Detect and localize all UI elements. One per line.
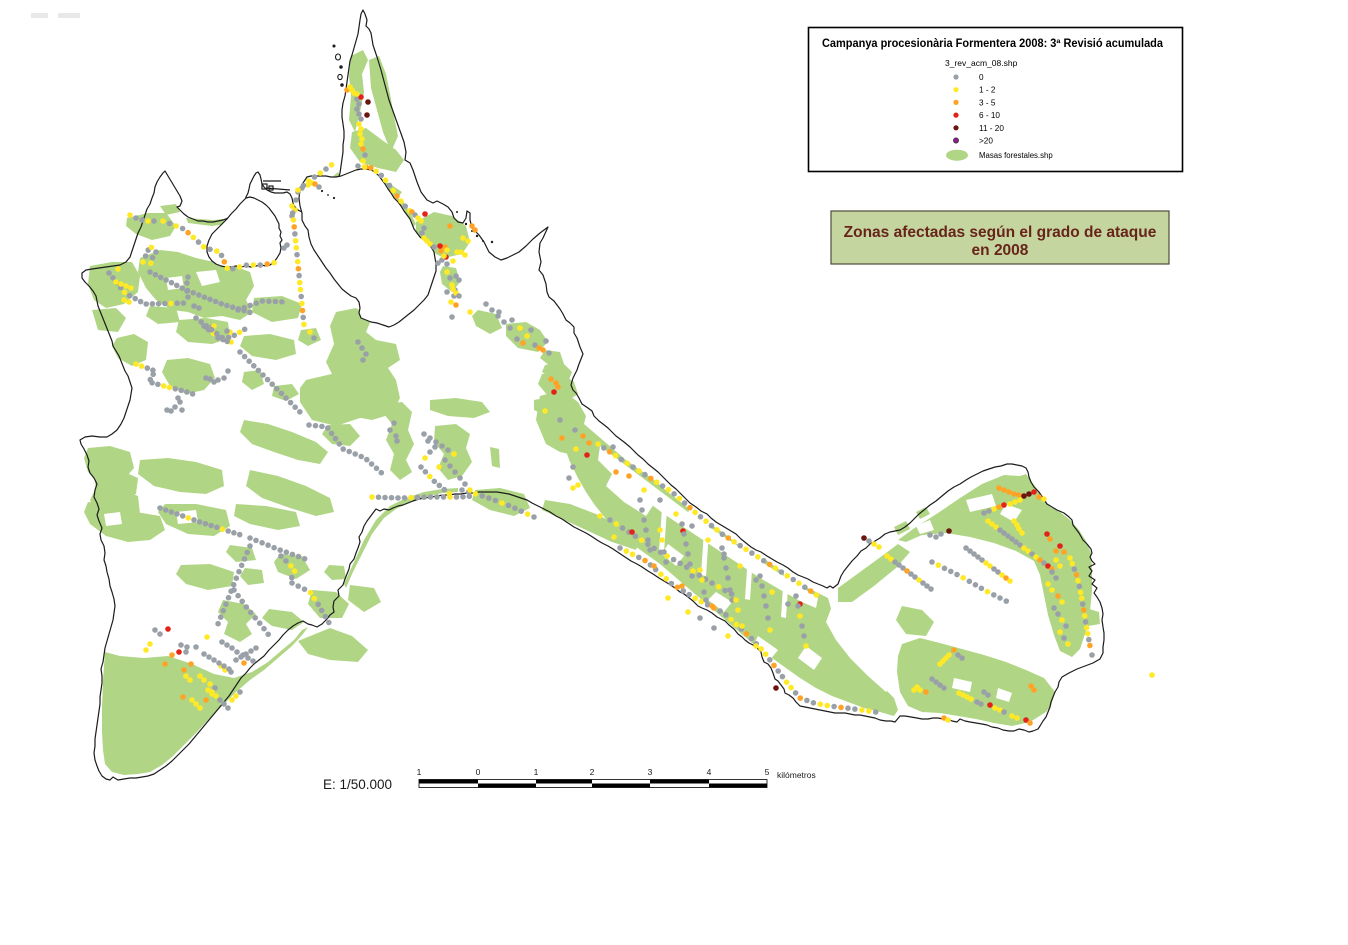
svg-text:en 2008: en 2008 (972, 242, 1029, 259)
svg-text:3_rev_acm_08.shp: 3_rev_acm_08.shp (945, 58, 1018, 68)
svg-text:Zonas afectadas según el grado: Zonas afectadas según el grado de ataque (844, 224, 1157, 241)
svg-text:>20: >20 (979, 137, 993, 146)
svg-text:11 - 20: 11 - 20 (979, 124, 1004, 133)
svg-text:2: 2 (590, 767, 595, 777)
svg-text:4: 4 (707, 767, 712, 777)
svg-text:E: 1/50.000: E: 1/50.000 (323, 777, 392, 792)
svg-text:0: 0 (979, 73, 984, 82)
svg-text:1: 1 (417, 767, 422, 777)
svg-text:3 - 5: 3 - 5 (979, 98, 996, 107)
svg-text:Campanya procesionària Forment: Campanya procesionària Formentera 2008: … (822, 38, 1164, 50)
svg-text:3: 3 (648, 767, 653, 777)
svg-text:1: 1 (534, 767, 539, 777)
svg-text:5: 5 (765, 767, 770, 777)
svg-text:kilómetros: kilómetros (777, 770, 816, 780)
svg-text:Masas forestales.shp: Masas forestales.shp (979, 151, 1053, 160)
svg-text:6 - 10: 6 - 10 (979, 111, 1000, 120)
svg-text:1 - 2: 1 - 2 (979, 86, 996, 95)
svg-text:0: 0 (476, 767, 481, 777)
